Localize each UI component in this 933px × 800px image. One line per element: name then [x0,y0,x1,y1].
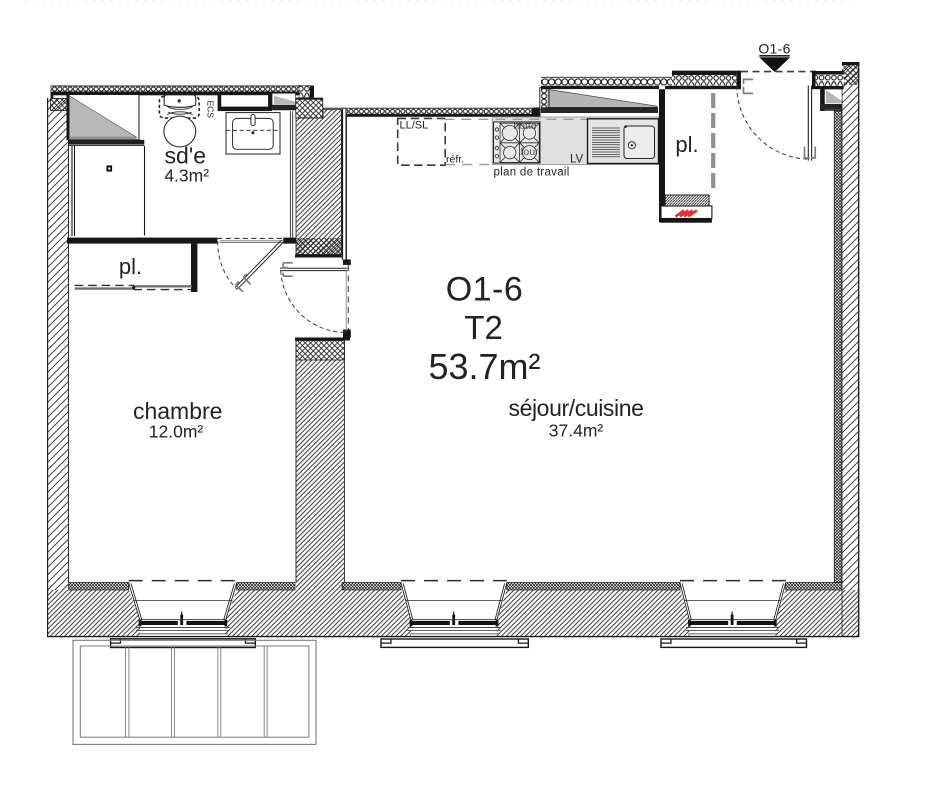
svg-text:séjour/cuisine: séjour/cuisine [508,395,643,421]
svg-text:pl.: pl. [119,254,142,279]
svg-text:O1-6: O1-6 [758,41,790,57]
svg-text:ECS: ECS [206,101,216,119]
svg-text:plan de travail: plan de travail [494,167,570,179]
svg-text:chambre: chambre [133,398,222,424]
svg-text:37.4m²: 37.4m² [549,421,604,441]
svg-text:O1-6: O1-6 [446,271,524,309]
svg-text:four: four [520,146,539,158]
svg-text:12.0m²: 12.0m² [149,422,204,442]
svg-text:réfr.: réfr. [446,154,464,166]
svg-text:T2: T2 [464,309,503,346]
svg-text:53.7m²: 53.7m² [428,346,540,387]
svg-text:4.3m²: 4.3m² [164,166,209,186]
svg-text:LL/SL: LL/SL [400,120,429,132]
svg-text:LV: LV [570,154,584,166]
svg-text:hotte: hotte [513,120,537,132]
svg-text:pl.: pl. [675,132,698,157]
